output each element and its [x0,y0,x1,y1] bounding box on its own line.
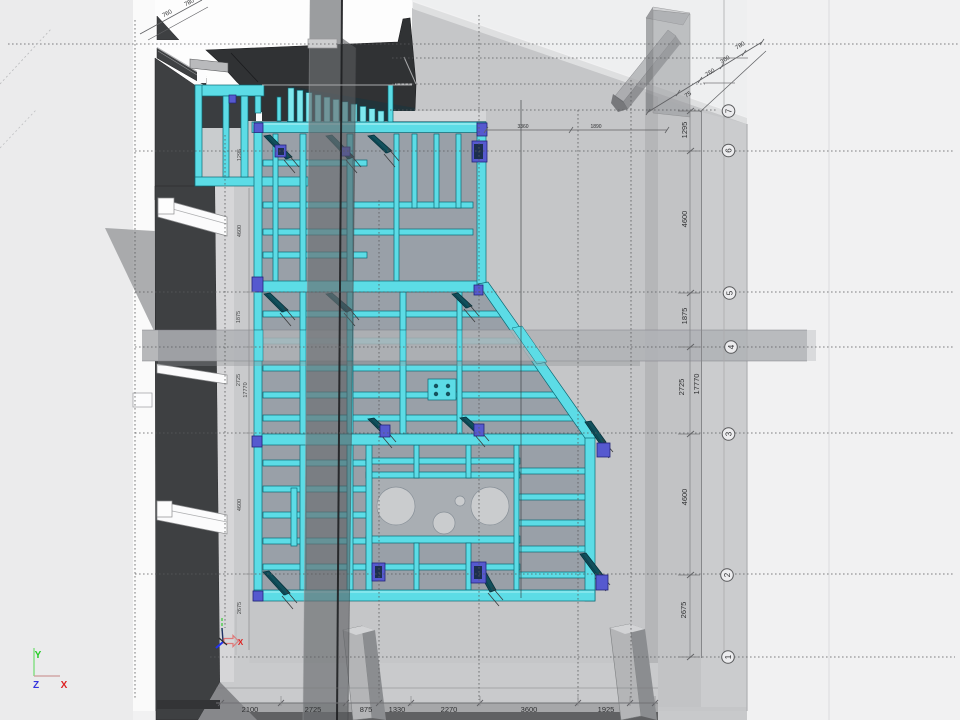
svg-text:1890: 1890 [590,124,601,130]
svg-text:Y: Y [35,650,42,661]
svg-text:1925: 1925 [598,705,615,714]
svg-text:3600: 3600 [521,705,538,714]
svg-text:4600: 4600 [680,211,689,228]
svg-text:1: 1 [724,654,733,659]
svg-text:6: 6 [724,148,733,153]
svg-text:4600: 4600 [680,489,689,506]
svg-text:2725: 2725 [677,379,686,396]
svg-text:4600: 4600 [237,225,243,237]
svg-text:1295: 1295 [680,122,689,139]
svg-text:2725: 2725 [236,374,242,386]
svg-text:7: 7 [724,108,733,113]
svg-text:2: 2 [723,572,732,577]
svg-text:1295: 1295 [237,149,243,161]
svg-text:1875: 1875 [680,308,689,325]
svg-text:X: X [238,638,244,647]
svg-text:4600: 4600 [237,499,243,511]
svg-text:17770: 17770 [692,374,701,395]
svg-text:3360: 3360 [517,124,528,130]
svg-text:X: X [61,680,68,691]
svg-text:3: 3 [724,431,733,436]
svg-text:875: 875 [360,705,373,714]
svg-text:Z: Z [33,680,39,691]
svg-text:5: 5 [725,290,734,295]
svg-text:2270: 2270 [441,705,458,714]
svg-text:1330: 1330 [389,705,406,714]
svg-text:4: 4 [727,344,736,349]
svg-text:2100: 2100 [242,705,259,714]
svg-text:2675: 2675 [679,602,688,619]
svg-text:2675: 2675 [237,602,243,614]
svg-text:2725: 2725 [305,705,322,714]
svg-text:1875: 1875 [236,311,242,323]
svg-text:17770: 17770 [243,382,249,397]
